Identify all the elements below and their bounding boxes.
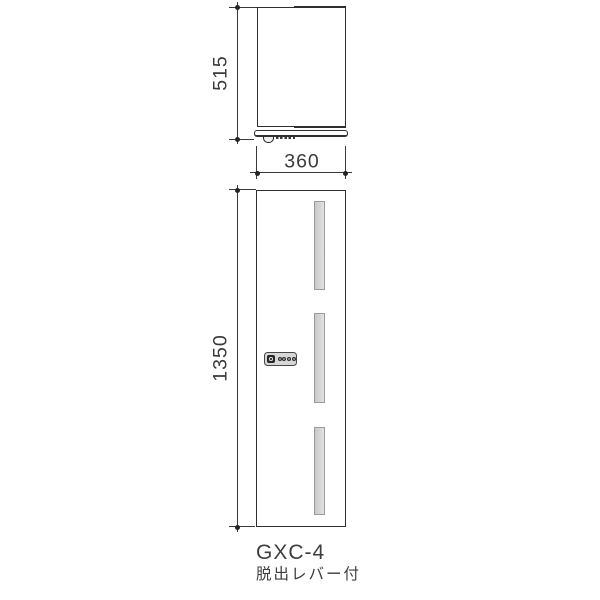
product-spec-diagram: 515 360 1350 GXC-4 脱出レバー付 [0,0,600,600]
extension-line [229,7,257,8]
arrow-dot [235,137,240,142]
vent-slot [314,427,326,515]
dial-icon [287,357,291,361]
dial-wheels [278,357,296,361]
depth-dimension-line [237,2,238,144]
arrow-dot [343,171,348,176]
height-dimension-label: 1350 [210,334,233,381]
feature-caption: 脱出レバー付 [256,562,361,584]
extension-line [229,526,255,527]
vent-slot [314,201,326,290]
arrow-dot [255,171,260,176]
keyhole-icon [267,355,275,363]
depth-dimension-label: 515 [210,55,233,91]
dial-icon [292,357,296,361]
top-view-front-panel [254,130,348,137]
height-dimension-line [237,185,238,532]
extension-line [229,139,254,140]
arrow-dot [235,188,240,193]
dial-icon [282,357,286,361]
top-view-lid-seam [294,6,346,8]
combination-lock-panel [264,352,297,366]
vent-slot [314,313,326,404]
width-dimension-label: 360 [284,151,320,174]
dial-icon [278,357,282,361]
hinge-teeth [276,137,297,140]
top-view-outline [257,7,346,127]
extension-line [229,189,256,190]
arrow-dot [235,5,240,10]
arrow-dot [235,525,240,530]
escape-lever-knob [263,137,274,143]
top-view-front-seam [294,127,346,129]
